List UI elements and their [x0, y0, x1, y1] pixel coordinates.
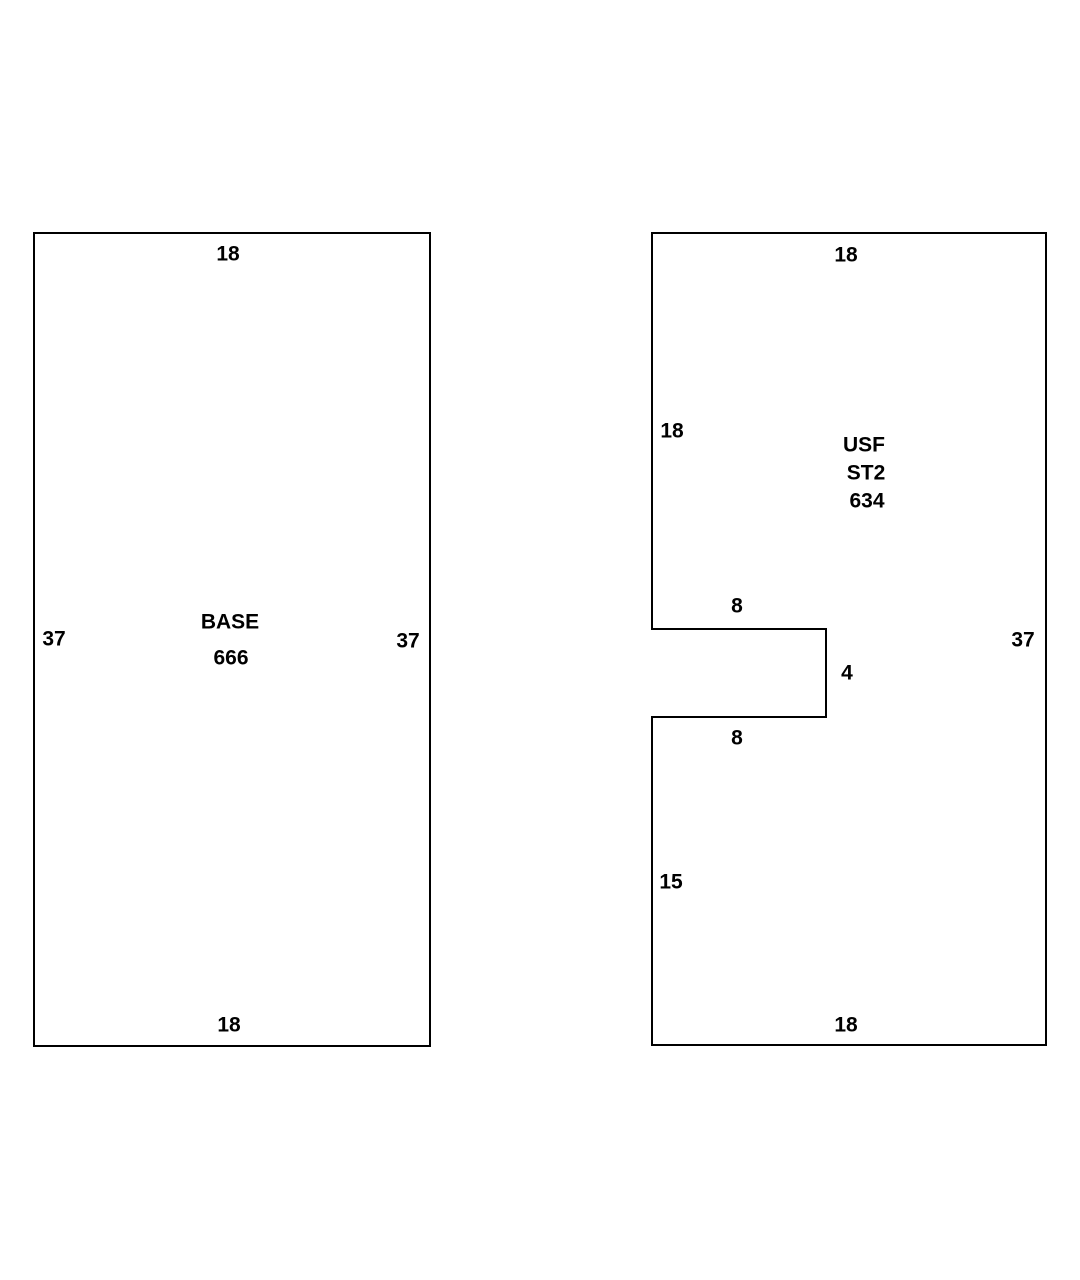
usf-dim-notch-bottom: 8	[731, 728, 743, 749]
usf-dim-notch-right: 4	[841, 663, 853, 684]
usf-dim-top: 18	[834, 245, 857, 266]
base-dim-left: 37	[42, 629, 65, 650]
base-dim-bottom: 18	[217, 1015, 240, 1036]
base-shape-name: BASE	[201, 612, 259, 633]
usf-dim-upper-left: 18	[660, 421, 683, 442]
usf-shape-outline	[652, 233, 1046, 1045]
usf-shape-name-line2: ST2	[847, 463, 886, 484]
base-dim-top: 18	[216, 244, 239, 265]
usf-shape-name-line1: USF	[843, 435, 885, 456]
base-shape-outline	[34, 233, 430, 1046]
usf-dim-lower-left: 15	[659, 872, 682, 893]
base-shape-area: 666	[213, 648, 248, 669]
usf-dim-notch-top: 8	[731, 596, 743, 617]
base-dim-right: 37	[396, 631, 419, 652]
sketch-canvas: 18 37 BASE 666 37 18 18 18 USF ST2 634 8…	[0, 0, 1080, 1280]
usf-shape-area: 634	[849, 491, 884, 512]
sketch-outlines	[0, 0, 1080, 1280]
usf-dim-right: 37	[1011, 630, 1034, 651]
usf-dim-bottom: 18	[834, 1015, 857, 1036]
